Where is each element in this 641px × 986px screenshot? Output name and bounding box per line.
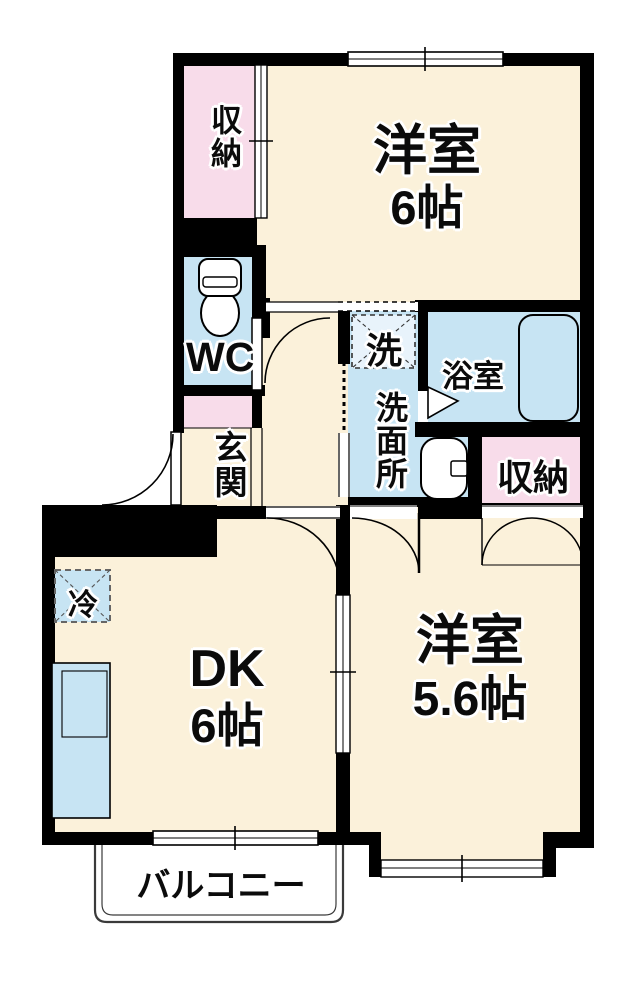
opening-washroom-top-dashed (338, 302, 418, 311)
opening-western56-door (350, 505, 417, 519)
dk-label: DK 6帖 (136, 640, 318, 754)
dk-name: DK (136, 640, 318, 698)
western56-label: 洋室 5.6帖 (350, 611, 590, 729)
washing-machine-label: 洗 (364, 322, 404, 374)
western6-label: 洋室 6帖 (338, 121, 516, 235)
wall-washroom-left (338, 308, 350, 364)
wc-label: WC (186, 334, 254, 381)
wall-bay-left-stub (369, 843, 381, 877)
toilet-icon (199, 259, 241, 336)
entrance-door-arc (102, 434, 173, 505)
shoe-cabinet-area (184, 396, 252, 428)
wall-hall-dk (217, 506, 266, 519)
entrance-label: 玄関 (204, 430, 252, 500)
wall-closet-right-left (468, 435, 482, 503)
closet-top-label: 収納 (201, 104, 246, 170)
washroom-label: 洗面所 (367, 391, 413, 490)
wall-bay-right-stub (543, 843, 556, 877)
western6-name: 洋室 (338, 121, 516, 181)
refrigerator-label: 冷 (66, 580, 100, 624)
balcony-label: バルコニー (110, 858, 332, 907)
wall-bottom-right (543, 832, 594, 848)
sink-icon (421, 438, 467, 499)
western6-size: 6帖 (338, 181, 516, 235)
wall-bathroom-bottom (415, 422, 594, 437)
opening-dk-door (266, 506, 340, 519)
kitchen-counter-icon (52, 663, 110, 818)
wall-shoe-jamb (252, 388, 262, 428)
floor-plan: 収納 洋室 6帖 WC 洗 浴室 洗面所 収納 玄関 冷 DK 6帖 洋室 5.… (0, 0, 641, 986)
wall-wc-bottom (173, 385, 265, 396)
opening-washroom-lower (338, 433, 350, 497)
opening-hall-western6 (266, 302, 338, 312)
wall-bathroom-top (415, 300, 594, 312)
dk-size: 6帖 (136, 698, 318, 754)
closet-right-label: 収納 (481, 449, 585, 501)
wall-thick-band (42, 505, 217, 557)
wall-dk-partition-lower (336, 753, 350, 845)
wall-wc-top (184, 245, 254, 257)
western56-size: 5.6帖 (350, 671, 590, 729)
wall-bottom-left (42, 832, 153, 845)
bathroom-label: 浴室 (427, 351, 519, 396)
wall-top-left (173, 53, 348, 66)
western56-name: 洋室 (350, 611, 590, 671)
